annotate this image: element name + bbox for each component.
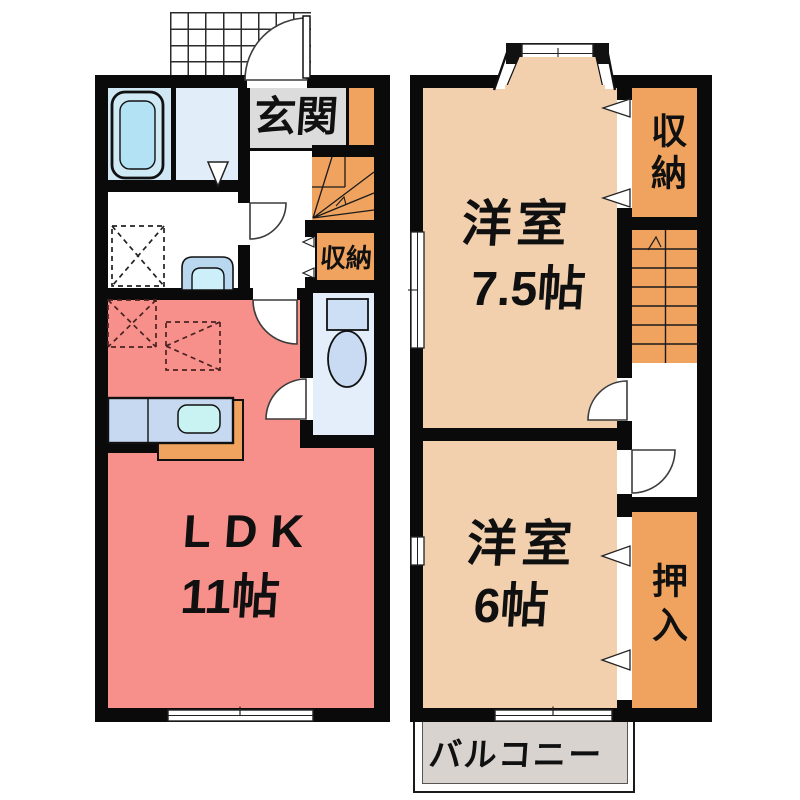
storage-2f-door-triangles xyxy=(603,99,630,207)
hall-door-arc xyxy=(250,203,286,239)
stairs-1f-treads xyxy=(312,157,374,218)
washbasin xyxy=(182,257,233,290)
window-1f-south xyxy=(168,707,313,722)
window-2f-south xyxy=(495,707,612,722)
entrance-door-arc xyxy=(245,16,310,80)
oshiire-door-triangles xyxy=(602,546,630,670)
kitchen-counter xyxy=(108,398,243,460)
bathtub xyxy=(112,92,163,178)
window-2f-west-large xyxy=(408,232,424,348)
bay-window xyxy=(494,43,615,90)
stairs-2f-treads xyxy=(632,230,699,363)
floorplan-canvas: 玄関 収納 LDK 11帖 洋室 7.5帖 収納 洋室 6帖 xyxy=(0,0,800,800)
bathroom-door-triangle xyxy=(208,162,228,186)
appliance-area-fridge xyxy=(108,300,156,347)
appliance-area-arrow xyxy=(166,322,220,370)
window-2f-west-small xyxy=(411,537,424,565)
kitchen-sink xyxy=(178,405,220,433)
storage-1f-door-triangles xyxy=(303,237,314,278)
linework-overlay xyxy=(0,0,800,800)
toilet-door-arc xyxy=(266,379,306,419)
room75-door-arc xyxy=(588,381,627,420)
room6-door-arc xyxy=(632,450,675,493)
ldk-door-arc xyxy=(253,300,297,344)
washing-machine-area xyxy=(112,226,164,286)
toilet xyxy=(327,299,368,387)
